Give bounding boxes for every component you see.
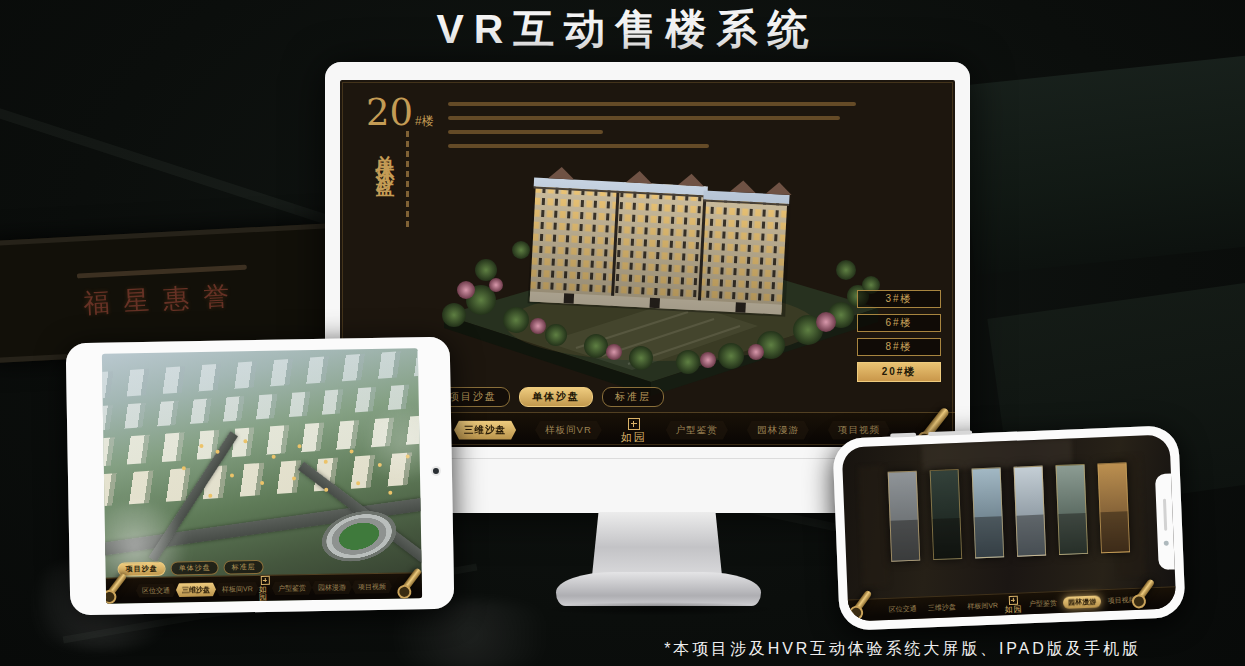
building-number-markers xyxy=(199,444,203,448)
logo-text: 如园 xyxy=(1004,605,1022,614)
menu-item-3d-sandbox[interactable]: 三维沙盘 xyxy=(454,421,516,440)
menu-item-location[interactable]: 区位交通 xyxy=(883,602,921,616)
footnote-text: *本项目涉及HVR互动体验系统大屏版、IPAD版及手机版 xyxy=(664,639,1141,660)
poster-canvas: 福星惠誉 VR互动售楼系统 20#楼 单体沙盘 xyxy=(0,0,1245,666)
floor-button-8[interactable]: 8#楼 xyxy=(857,338,941,356)
building-render xyxy=(426,130,896,410)
phone-screen: 区位交通 三维沙盘 样板间VR 如园 户型鉴赏 园林漫游 项目视频 xyxy=(842,434,1177,621)
tab-standard-floor[interactable]: 标准层 xyxy=(602,387,664,407)
logo-seal-icon xyxy=(1009,595,1018,604)
brand-logo: 如园 xyxy=(1004,595,1023,614)
monitor-stand-base xyxy=(556,572,761,606)
menu-item-showroom-vr[interactable]: 样板间VR xyxy=(535,421,602,440)
floor-button-20[interactable]: 20#楼 xyxy=(857,362,941,382)
menu-item-unit-plans[interactable]: 户型鉴赏 xyxy=(1024,596,1062,610)
page-title: VR互动售楼系统 xyxy=(0,2,1245,57)
heading-deco-bar xyxy=(406,131,409,231)
description-line xyxy=(448,102,856,106)
brand-logo: 如园 xyxy=(258,575,272,601)
logo-text: 如园 xyxy=(621,432,647,443)
tab-single-sandbox[interactable]: 单体沙盘 xyxy=(519,387,593,407)
gallery-panel-row xyxy=(843,460,1174,563)
menu-item-garden-tour[interactable]: 园林漫游 xyxy=(747,421,809,440)
gallery-panel[interactable] xyxy=(887,471,920,562)
building-number: 20 xyxy=(366,91,413,134)
monitor-stand-shadow xyxy=(540,602,780,616)
logo-text: 如园 xyxy=(259,585,273,601)
logo-seal-icon xyxy=(261,575,270,584)
phone-notch xyxy=(1155,473,1175,570)
brand-logo: 如园 xyxy=(621,418,647,443)
menu-item-garden-tour[interactable]: 园林漫游 xyxy=(312,580,352,595)
tablet-screen: 项目沙盘 单体沙盘 标准层 区位交通 三维沙盘 样板间VR 如园 户型鉴赏 园林… xyxy=(102,348,422,603)
gallery-panel[interactable] xyxy=(1055,464,1088,555)
tab-single-sandbox[interactable]: 单体沙盘 xyxy=(170,561,218,576)
monitor-stand-neck xyxy=(592,512,722,576)
plaque-text: 福星惠誉 xyxy=(83,278,245,321)
gallery-panel[interactable] xyxy=(929,469,962,560)
phone-device: 区位交通 三维沙盘 样板间VR 如园 户型鉴赏 园林漫游 项目视频 xyxy=(832,425,1185,631)
menu-item-unit-plans[interactable]: 户型鉴赏 xyxy=(666,421,728,440)
speaker-slit-icon xyxy=(1162,498,1166,530)
logo-seal-icon xyxy=(628,418,640,430)
floor-button-6[interactable]: 6#楼 xyxy=(857,314,941,332)
menu-item-3d-sandbox[interactable]: 三维沙盘 xyxy=(923,600,961,614)
menu-item-location[interactable]: 区位交通 xyxy=(136,583,176,598)
tablet-device: 项目沙盘 单体沙盘 标准层 区位交通 三维沙盘 样板间VR 如园 户型鉴赏 园林… xyxy=(66,337,455,616)
gallery-panel[interactable] xyxy=(1013,466,1046,557)
camera-dot-icon xyxy=(1163,540,1168,545)
phone-volume-button xyxy=(890,433,916,438)
description-line xyxy=(448,116,840,120)
plaque-caption-bar xyxy=(77,265,247,279)
phone-menu-bar: 区位交通 三维沙盘 样板间VR 如园 户型鉴赏 园林漫游 项目视频 xyxy=(848,586,1177,621)
gallery-panel[interactable] xyxy=(1097,462,1130,553)
tab-standard-floor[interactable]: 标准层 xyxy=(223,560,263,575)
phone-volume-button xyxy=(928,430,972,436)
view-tab-row: 项目沙盘 单体沙盘 标准层 xyxy=(436,387,664,407)
floor-button-3[interactable]: 3#楼 xyxy=(857,290,941,308)
tablet-camera-dot xyxy=(433,468,439,474)
heading-vertical-title: 单体沙盘 xyxy=(372,139,398,257)
menu-item-project-video[interactable]: 项目视频 xyxy=(352,579,392,594)
menu-item-unit-plans[interactable]: 户型鉴赏 xyxy=(272,581,312,596)
menu-item-showroom-vr[interactable]: 样板间VR xyxy=(216,582,259,597)
menu-item-showroom-vr[interactable]: 样板间VR xyxy=(962,599,1003,613)
menu-item-3d-sandbox[interactable]: 三维沙盘 xyxy=(176,582,216,597)
gallery-panel[interactable] xyxy=(971,467,1004,558)
building-heading: 20#楼 单体沙盘 xyxy=(366,94,434,261)
tablet-menu-bar: 区位交通 三维沙盘 样板间VR 如园 户型鉴赏 园林漫游 项目视频 xyxy=(106,572,422,604)
tablet-view-tabs: 项目沙盘 单体沙盘 标准层 xyxy=(117,560,263,577)
floor-button-group: 3#楼 6#楼 8#楼 20#楼 xyxy=(857,290,941,382)
menu-item-garden-tour[interactable]: 园林漫游 xyxy=(1063,595,1101,609)
building-unit: #楼 xyxy=(415,114,434,128)
bg-aerial-photo xyxy=(956,55,1245,275)
